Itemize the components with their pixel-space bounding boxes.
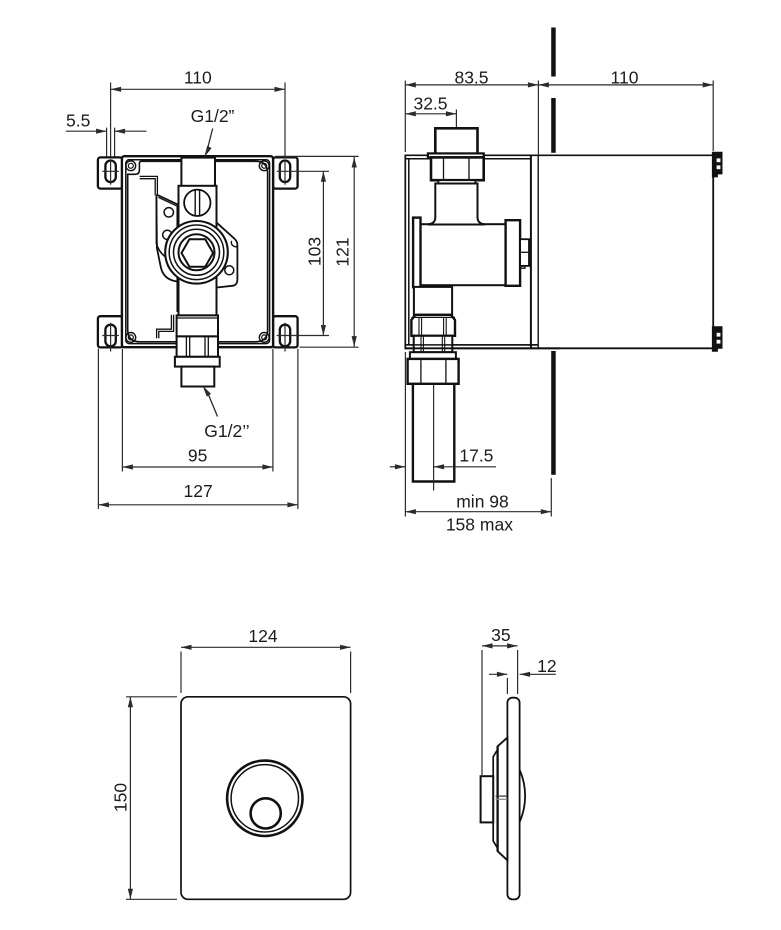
svg-text:min 98: min 98 <box>456 492 509 512</box>
svg-text:17.5: 17.5 <box>459 446 493 466</box>
svg-text:150: 150 <box>110 783 130 812</box>
svg-text:12: 12 <box>537 656 556 676</box>
svg-text:95: 95 <box>188 446 207 466</box>
svg-text:110: 110 <box>184 68 212 88</box>
svg-text:83.5: 83.5 <box>454 67 488 87</box>
svg-text:110: 110 <box>611 67 639 87</box>
svg-text:124: 124 <box>248 626 277 646</box>
svg-text:G1/2”: G1/2” <box>191 106 235 126</box>
svg-text:35: 35 <box>491 625 510 645</box>
svg-text:121: 121 <box>333 237 353 266</box>
svg-text:G1/2’’: G1/2’’ <box>204 421 249 441</box>
svg-text:158 max: 158 max <box>446 515 513 535</box>
svg-text:103: 103 <box>305 237 325 266</box>
svg-text:32.5: 32.5 <box>413 93 447 113</box>
svg-text:127: 127 <box>184 481 213 501</box>
svg-text:5.5: 5.5 <box>66 110 90 130</box>
